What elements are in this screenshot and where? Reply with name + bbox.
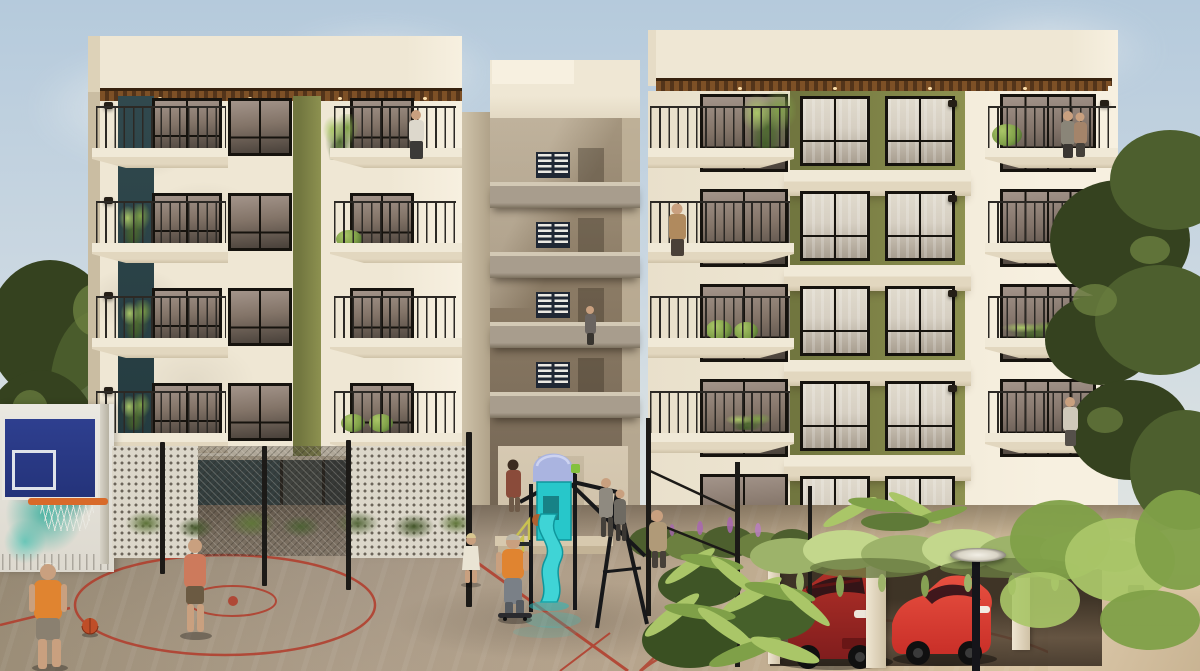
person-skateboarder [496,534,532,624]
person-child [461,533,481,588]
basketball [82,618,98,638]
person-left-balcony [409,110,424,159]
person-resident-walkway-2 [649,510,667,568]
person-right-balcony-lower [1063,397,1078,446]
person-courtyard-balcony [669,204,686,257]
person-couple-balcony [1061,111,1087,158]
person-corridor-woman [506,460,521,513]
person-resident-walkway-1 [599,478,627,541]
person-tower-landing [585,306,596,345]
person-basketball-player-2 [180,539,212,640]
people-overlay [0,0,1200,671]
person-basketball-player-1 [29,563,68,671]
render-stage [0,0,1200,671]
